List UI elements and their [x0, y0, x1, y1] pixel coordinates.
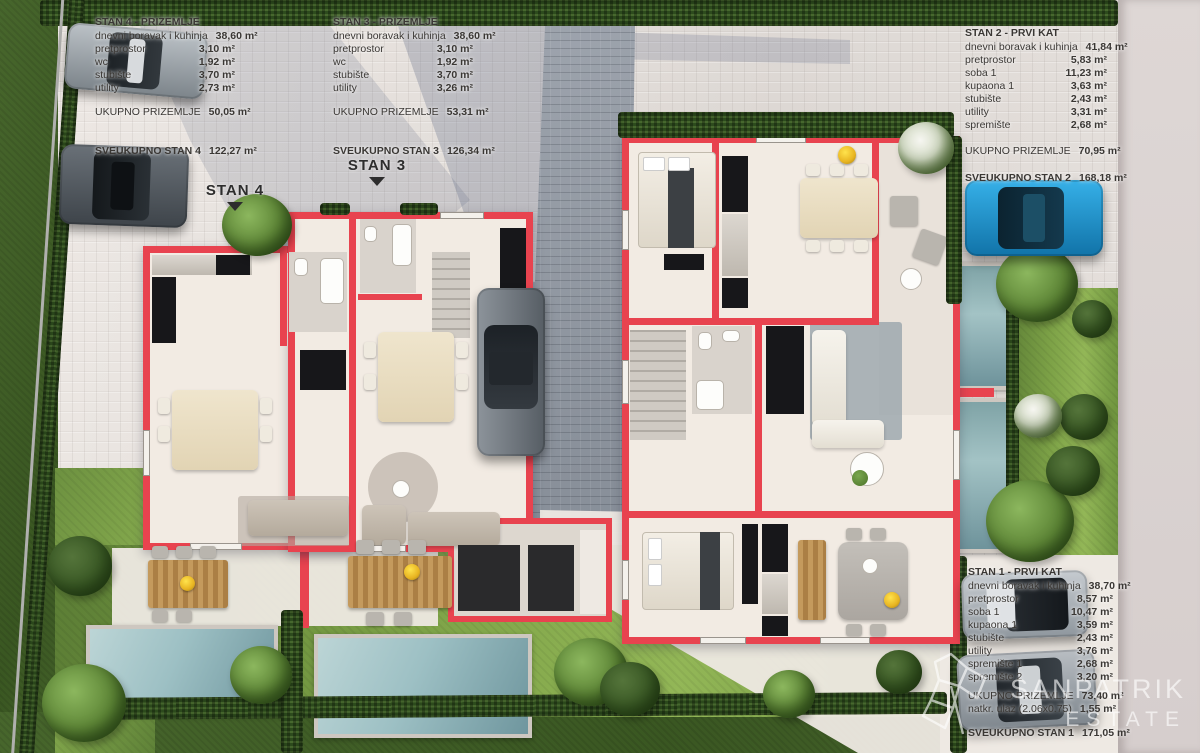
- row-label: utility: [965, 106, 989, 118]
- row-value: 3,63 m²: [1071, 80, 1107, 92]
- row-label: pretprostor: [965, 54, 1016, 66]
- row-label: stubište: [95, 69, 131, 81]
- row-value: 5,83 m²: [1071, 54, 1107, 66]
- total-row: SVEUKUPNO STAN 4122,27 m²: [95, 145, 235, 158]
- row-value: 2,68 m²: [1071, 119, 1107, 131]
- tree: [230, 646, 292, 704]
- toilet: [294, 258, 308, 276]
- window: [700, 637, 746, 644]
- partition-wall: [280, 246, 287, 346]
- bathtub: [320, 258, 344, 304]
- row-label: pretprostor: [95, 43, 146, 55]
- row-value: 10,47 m²: [1071, 606, 1113, 618]
- row-value: 3,70 m²: [199, 69, 235, 81]
- row-label: wc: [95, 56, 108, 68]
- bed-runner: [700, 532, 720, 610]
- marker-stan3: STAN 3: [342, 157, 412, 186]
- sofa: [362, 505, 406, 545]
- pillow: [648, 538, 662, 560]
- bed-runner: [668, 168, 694, 248]
- kitchen-counter: [722, 214, 748, 276]
- table-title: STAN 2 - PRVI KAT: [965, 27, 1107, 41]
- table-row: wc1,92 m²: [95, 56, 235, 69]
- car-sunroof: [110, 162, 135, 211]
- coffee-table: [392, 480, 410, 498]
- row-label: soba 1: [968, 606, 1000, 618]
- row-label: SVEUKUPNO STAN 3: [333, 145, 439, 157]
- row-label: utility: [333, 82, 357, 94]
- partition-wall: [629, 318, 879, 325]
- marker-label: STAN 4: [200, 182, 270, 199]
- table-row: stubište2,43 m²: [968, 632, 1113, 645]
- table-row: pretprostor3,10 m²: [95, 43, 235, 56]
- unit-divider-wall: [349, 212, 356, 552]
- table-row: stubište3,70 m²: [333, 69, 473, 82]
- pillow: [648, 564, 662, 586]
- row-value: 2,68 m²: [1077, 658, 1113, 670]
- tree: [42, 664, 126, 742]
- row-value: 8,57 m²: [1077, 593, 1113, 605]
- outdoor-chair: [890, 196, 918, 226]
- window: [440, 212, 484, 219]
- row-label: pretprostor: [968, 593, 1019, 605]
- row-value: 3,70 m²: [437, 69, 473, 81]
- car-roof: [1023, 194, 1045, 243]
- kitchen-cabinets: [762, 524, 788, 572]
- table-row: dnevni boravak i kuhinja41,84 m²: [965, 41, 1107, 54]
- table-row: soba 111,23 m²: [965, 67, 1107, 80]
- toilet: [698, 332, 712, 350]
- table-row: soba 110,47 m²: [968, 606, 1113, 619]
- row-value: 1,92 m²: [437, 56, 473, 68]
- row-label: stubište: [333, 69, 369, 81]
- table-row: stubište2,43 m²: [965, 93, 1107, 106]
- flower-bush: [898, 122, 954, 174]
- subtotal-row: UKUPNO PRIZEMLJE53,31 m²: [333, 106, 473, 119]
- tree: [996, 246, 1078, 322]
- kitchen-island: [798, 540, 826, 620]
- row-label: kupaona 1: [965, 80, 1014, 92]
- bathtub: [392, 224, 412, 266]
- wardrobe: [766, 326, 804, 414]
- chair: [830, 164, 844, 176]
- sofa: [812, 420, 884, 448]
- entry-cell-dark: [528, 545, 574, 611]
- table-row: utility3,31 m²: [965, 106, 1107, 119]
- window: [820, 637, 870, 644]
- stairs: [630, 330, 686, 440]
- subtotal-row: UKUPNO PRIZEMLJE70,95 m²: [965, 145, 1107, 158]
- row-label: stubište: [965, 93, 1001, 105]
- outdoor-chair: [176, 546, 192, 558]
- chair: [260, 426, 272, 442]
- stairs: [432, 252, 470, 338]
- car-roof: [489, 352, 533, 386]
- row-value: 2,43 m²: [1071, 93, 1107, 105]
- row-label: wc: [333, 56, 346, 68]
- table-row: spremište2,68 m²: [965, 119, 1107, 132]
- entry-cell-dark: [458, 545, 520, 611]
- row-value: 3,10 m²: [437, 43, 473, 55]
- row-value: 38,60 m²: [454, 30, 496, 42]
- wardrobe: [742, 524, 758, 604]
- car-blue: [965, 180, 1103, 256]
- planter-box-1: [320, 203, 350, 215]
- row-label: SVEUKUPNO STAN 4: [95, 145, 201, 157]
- kitchen-counter: [762, 574, 788, 614]
- outdoor-chair: [356, 540, 374, 554]
- row-value: 70,95 m²: [1079, 145, 1121, 157]
- partition-wall: [755, 318, 762, 515]
- window: [190, 543, 242, 550]
- partition-wall: [358, 294, 422, 300]
- site-plan-scene: STAN 4 - PRIZEMLJE dnevni boravak i kuhi…: [0, 0, 1200, 753]
- toilet: [364, 226, 377, 242]
- chair: [158, 398, 170, 414]
- table-row: dnevni boravak i kuhinja38,60 m²: [333, 30, 473, 43]
- chair: [456, 342, 468, 358]
- row-label: dnevni boravak i kuhinja: [968, 580, 1081, 592]
- row-value: 1,92 m²: [199, 56, 235, 68]
- table-title: STAN 1 - PRVI KAT: [968, 566, 1113, 580]
- row-label: UKUPNO PRIZEMLJE: [965, 145, 1071, 157]
- kitchen-cabinets: [152, 277, 176, 343]
- total-row: SVEUKUPNO STAN 3126,34 m²: [333, 145, 473, 158]
- tree: [48, 536, 112, 596]
- row-label: stubište: [968, 632, 1004, 644]
- subtotal-row: UKUPNO PRIZEMLJE50,05 m²: [95, 106, 235, 119]
- area-table-stan3: STAN 3 - PRIZEMLJE dnevni boravak i kuhi…: [333, 16, 473, 158]
- chair: [846, 624, 862, 636]
- chair: [846, 528, 862, 540]
- table-row: dnevni boravak i kuhinja38,60 m²: [95, 30, 235, 43]
- row-value: 41,84 m²: [1086, 41, 1128, 53]
- entry-cell-light: [580, 530, 606, 614]
- area-table-stan2: STAN 2 - PRVI KAT dnevni boravak i kuhin…: [965, 27, 1107, 185]
- chair: [456, 374, 468, 390]
- window: [953, 430, 960, 480]
- chair: [806, 240, 820, 252]
- row-value: 3,26 m²: [437, 82, 473, 94]
- tree: [600, 662, 660, 716]
- watermark: SANPATRIK ESTATE: [926, 676, 1186, 730]
- outdoor-chair: [382, 540, 400, 554]
- tree: [1046, 446, 1100, 496]
- chair: [364, 374, 376, 390]
- chair: [830, 240, 844, 252]
- row-value: 2,73 m²: [199, 82, 235, 94]
- plant: [852, 470, 868, 486]
- row-label: utility: [95, 82, 119, 94]
- plant: [884, 592, 900, 608]
- window: [622, 210, 629, 250]
- row-label: SVEUKUPNO STAN 2: [965, 172, 1071, 184]
- watermark-line1: SANPATRIK: [926, 676, 1186, 703]
- outdoor-chair: [408, 540, 426, 554]
- plant: [404, 564, 420, 580]
- dining-table: [378, 332, 454, 422]
- outdoor-chair: [200, 546, 216, 558]
- total-row: SVEUKUPNO STAN 2168,18 m²: [965, 172, 1107, 185]
- row-value: 50,05 m²: [209, 106, 251, 118]
- outdoor-chair: [152, 546, 168, 558]
- chair: [870, 528, 886, 540]
- table-row: wc1,92 m²: [333, 56, 473, 69]
- dining-table: [800, 178, 878, 238]
- table-row: dnevni boravak i kuhinja38,70 m²: [968, 580, 1113, 593]
- kitchen-cabinets: [722, 156, 748, 212]
- window: [622, 360, 629, 404]
- chair: [806, 164, 820, 176]
- row-label: UKUPNO PRIZEMLJE: [333, 106, 439, 118]
- balcony-table: [900, 268, 922, 290]
- outdoor-table: [348, 556, 452, 608]
- table-row: utility3,26 m²: [333, 82, 473, 95]
- row-value: 11,23 m²: [1066, 67, 1107, 79]
- down-arrow-icon: [369, 177, 385, 186]
- right-boundary-strip: [1118, 0, 1200, 753]
- row-label: dnevni boravak i kuhinja: [333, 30, 446, 42]
- row-value: 3,59 m²: [1077, 619, 1113, 631]
- wardrobe: [300, 350, 346, 390]
- marker-label: STAN 3: [342, 157, 412, 174]
- row-label: spremište: [965, 119, 1011, 131]
- kitchen-cabinets: [762, 616, 788, 636]
- pillow: [643, 157, 665, 171]
- chair: [158, 426, 170, 442]
- plant: [838, 146, 856, 164]
- kitchen-cabinets: [722, 278, 748, 308]
- table-title: STAN 4 - PRIZEMLJE: [95, 16, 235, 30]
- table-row: kupaona 13,59 m²: [968, 619, 1113, 632]
- chair: [854, 240, 868, 252]
- row-value: 3,31 m²: [1071, 106, 1107, 118]
- partition-wall: [629, 511, 953, 518]
- outdoor-chair: [366, 612, 384, 626]
- chair: [364, 342, 376, 358]
- watermark-line2: ESTATE: [926, 709, 1186, 730]
- window: [622, 560, 629, 600]
- pillow: [668, 157, 690, 171]
- row-label: kupaona 1: [968, 619, 1017, 631]
- row-value: 3,76 m²: [1077, 645, 1113, 657]
- plate: [862, 558, 878, 574]
- row-value: 38,70 m²: [1089, 580, 1131, 592]
- car-grey-center: [477, 288, 545, 456]
- table-row: kupaona 13,63 m²: [965, 80, 1107, 93]
- row-label: dnevni boravak i kuhinja: [965, 41, 1078, 53]
- row-value: 53,31 m²: [447, 106, 489, 118]
- bed-bench: [664, 254, 704, 270]
- area-table-stan4: STAN 4 - PRIZEMLJE dnevni boravak i kuhi…: [95, 16, 235, 158]
- row-value: 2,43 m²: [1077, 632, 1113, 644]
- row-value: 126,34 m²: [447, 145, 495, 157]
- row-label: UKUPNO PRIZEMLJE: [95, 106, 201, 118]
- table-row: utility2,73 m²: [95, 82, 235, 95]
- outdoor-chair: [176, 610, 192, 622]
- chair: [854, 164, 868, 176]
- pool-stan3: [314, 634, 532, 738]
- sink: [722, 330, 740, 342]
- dining-table: [172, 390, 258, 470]
- chair: [260, 398, 272, 414]
- window: [143, 430, 150, 476]
- table-row: pretprostor8,57 m²: [968, 593, 1113, 606]
- row-value: 168,18 m²: [1079, 172, 1127, 184]
- row-value: 38,60 m²: [216, 30, 258, 42]
- marker-stan4: STAN 4: [200, 182, 270, 211]
- row-label: soba 1: [965, 67, 997, 79]
- outdoor-chair: [152, 610, 168, 622]
- row-label: dnevni boravak i kuhinja: [95, 30, 208, 42]
- chair: [870, 624, 886, 636]
- flower-bush: [1014, 394, 1062, 438]
- tree: [1060, 394, 1108, 440]
- row-value: 3,10 m²: [199, 43, 235, 55]
- shower: [696, 380, 724, 410]
- planter-box-2: [400, 203, 438, 215]
- down-arrow-icon: [227, 202, 243, 211]
- plant: [180, 576, 195, 591]
- row-value: 122,27 m²: [209, 145, 257, 157]
- tree: [763, 670, 815, 718]
- sofa: [812, 330, 846, 426]
- table-row: pretprostor5,83 m²: [965, 54, 1107, 67]
- sofa: [248, 500, 348, 536]
- dining-table: [838, 542, 908, 620]
- tree: [1072, 300, 1112, 338]
- table-row: stubište3,70 m²: [95, 69, 235, 82]
- outdoor-chair: [394, 612, 412, 626]
- row-label: pretprostor: [333, 43, 384, 55]
- table-title: STAN 3 - PRIZEMLJE: [333, 16, 473, 30]
- table-row: pretprostor3,10 m²: [333, 43, 473, 56]
- fridge: [216, 255, 250, 275]
